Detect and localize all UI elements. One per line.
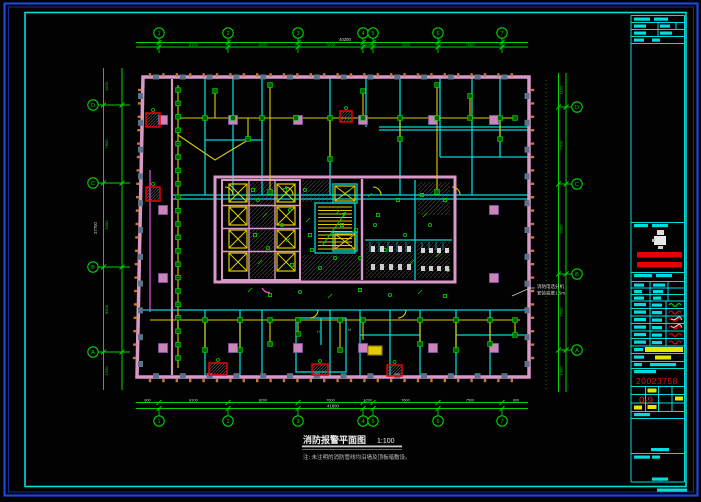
- column-tick: [531, 89, 534, 91]
- tb-text-bar: [652, 334, 662, 337]
- column-block: [207, 75, 213, 80]
- tb-text-bar: [653, 290, 663, 293]
- toilet-fixture: [389, 264, 393, 270]
- axis-bubble-label: 4: [361, 31, 364, 37]
- column-block: [421, 75, 427, 80]
- interior-columns: [159, 116, 499, 353]
- column-block: [341, 75, 347, 80]
- column-block: [525, 254, 530, 260]
- column-tick: [134, 276, 137, 278]
- column-tick: [470, 73, 472, 76]
- device-dot: [177, 170, 178, 171]
- toilet-fixture: [398, 246, 402, 252]
- tb-text-bar: [653, 297, 661, 300]
- column-tick: [310, 379, 312, 382]
- column-tick: [531, 317, 534, 319]
- column-tick: [457, 73, 459, 76]
- dim-text: 8200: [259, 42, 269, 47]
- device-dot: [499, 117, 500, 118]
- annotation-mark: [403, 233, 406, 236]
- dim-text: 7600: [326, 398, 334, 402]
- column-tick: [470, 379, 472, 382]
- column-block: [525, 173, 530, 179]
- device-dot: [297, 333, 298, 334]
- column-tick: [138, 116, 141, 118]
- interior-column: [490, 206, 499, 215]
- column-block: [138, 173, 143, 179]
- toilet-fixture: [421, 248, 425, 253]
- tb-text-bar: [652, 224, 668, 227]
- fire-hydrant-box: [387, 365, 402, 376]
- drawing-title: 消防报警平面图: [303, 434, 366, 445]
- tb-text-bar: [652, 478, 668, 481]
- tb-text-bar: [652, 39, 660, 42]
- tb-text-bar: [634, 18, 650, 21]
- toilet-fixture: [429, 266, 433, 271]
- axis-bubble-label: 3: [296, 31, 299, 37]
- axis-bubble-label: C: [91, 181, 95, 187]
- column-tick: [336, 379, 338, 382]
- device-dot: [489, 343, 490, 344]
- column-block: [525, 93, 530, 99]
- fire-hydrant-box: [146, 113, 160, 127]
- interior-column: [294, 344, 303, 353]
- device-dot: [297, 319, 298, 320]
- column-block: [525, 334, 530, 340]
- tb-text-bar: [660, 25, 670, 28]
- tb-text-bar: [634, 39, 644, 42]
- column-block: [138, 361, 143, 367]
- dim-text: 1500: [104, 366, 109, 376]
- device-dot: [261, 117, 262, 118]
- tb-text-bar: [652, 326, 662, 329]
- column-tick: [283, 379, 285, 382]
- axis-bubble-label: 6: [436, 31, 439, 37]
- column-tick: [202, 379, 204, 382]
- dim-text: 40200: [339, 37, 351, 42]
- column-tick: [229, 379, 231, 382]
- axis-bubble-label: 5: [371, 419, 374, 425]
- column-tick: [444, 379, 446, 382]
- dim-text: 41800: [327, 403, 339, 408]
- column-tick: [135, 250, 138, 252]
- axis-bubble-label: D: [575, 105, 579, 111]
- device-dot: [177, 304, 178, 305]
- device-dot: [514, 117, 515, 118]
- device-dot: [469, 117, 470, 118]
- elevator-x: [229, 207, 247, 225]
- column-tick: [403, 73, 405, 76]
- column-tick: [136, 196, 139, 198]
- column-block: [475, 75, 481, 80]
- elevator-x: [229, 253, 247, 271]
- tb-highlight-bar: [655, 356, 671, 360]
- tb-text-bar: [651, 448, 669, 451]
- column-tick: [531, 303, 534, 305]
- annotation-mark: [388, 293, 391, 296]
- toilet-fixture: [389, 246, 393, 252]
- toilet-fixture: [421, 266, 425, 271]
- partition-walls: [137, 77, 529, 377]
- dim-text: 1500: [104, 81, 109, 91]
- tb-text-bar: [634, 297, 644, 300]
- column-tick: [162, 73, 164, 76]
- column-tick: [457, 379, 459, 382]
- annotation-mark: [310, 248, 313, 251]
- annotation-mark: [308, 233, 311, 236]
- column-tick: [484, 379, 486, 382]
- device-dot: [269, 343, 270, 344]
- tb-text-bar: [660, 32, 672, 35]
- column-tick: [323, 73, 325, 76]
- annotation-mark: [248, 288, 252, 292]
- toilet-fixture: [407, 264, 411, 270]
- column-block: [233, 75, 239, 80]
- drawing-scale: 1:100: [377, 438, 395, 445]
- dim-text: 1400: [559, 366, 564, 376]
- column-block: [525, 120, 530, 126]
- device-dot: [419, 343, 420, 344]
- device-dot: [247, 138, 248, 139]
- column-tick: [430, 379, 432, 382]
- column-tick: [256, 379, 258, 382]
- column-block: [138, 307, 143, 313]
- device-dot: [177, 250, 178, 251]
- column-tick: [531, 116, 534, 118]
- column-tick: [531, 196, 534, 198]
- device-dot: [269, 84, 270, 85]
- column-tick: [531, 129, 534, 131]
- dim-text: 7600: [401, 42, 411, 47]
- column-tick: [149, 379, 151, 382]
- column-tick: [134, 317, 137, 319]
- column-tick: [310, 73, 312, 76]
- device-dot: [329, 117, 330, 118]
- device-dot: [489, 319, 490, 320]
- device-dot: [204, 349, 205, 350]
- dim-text: 27700: [93, 222, 98, 234]
- floor-plan-canvas[interactable]: 20023758 0-9 123456781008200760012007600…: [0, 0, 701, 502]
- column-tick: [531, 343, 534, 345]
- column-tick: [497, 379, 499, 382]
- column-block: [138, 200, 143, 206]
- column-tick: [137, 129, 140, 131]
- signature-scribble: [669, 304, 681, 307]
- device-dot: [177, 237, 178, 238]
- column-block: [421, 373, 427, 378]
- annotation-mark: [290, 263, 293, 266]
- axis-bubble-label: B: [91, 265, 95, 271]
- tb-text-bar: [634, 311, 646, 314]
- toilet-fixture: [380, 264, 384, 270]
- column-tick: [176, 73, 178, 76]
- device-dot: [177, 210, 178, 211]
- tb-text-bar: [652, 311, 662, 314]
- column-block: [448, 75, 454, 80]
- column-block: [138, 254, 143, 260]
- toilet-fixture: [407, 246, 411, 252]
- device-dot: [436, 191, 437, 192]
- column-tick: [531, 330, 534, 332]
- annotation-mark: [288, 208, 291, 211]
- column-block: [138, 120, 143, 126]
- annotation-mark: [348, 188, 352, 192]
- device-dot: [514, 319, 515, 320]
- tb-text-bar: [634, 274, 652, 277]
- axis-bubble-label: 7: [500, 419, 503, 425]
- device-dot: [362, 90, 363, 91]
- drawing-number: 0-9: [639, 395, 653, 406]
- column-block: [448, 373, 454, 378]
- tb-highlight-bar: [675, 397, 683, 401]
- column-tick: [133, 330, 136, 332]
- column-tick: [511, 379, 513, 382]
- device-dot: [269, 191, 270, 192]
- column-block: [260, 75, 266, 80]
- toilet-fixture: [398, 264, 402, 270]
- column-tick: [133, 343, 136, 345]
- signature-scribble: [669, 311, 681, 314]
- column-block: [367, 75, 373, 80]
- column-tick: [531, 276, 534, 278]
- axis-bubble-label: 1: [157, 419, 160, 425]
- device-dot: [239, 349, 240, 350]
- tb-text-bar: [634, 341, 646, 344]
- tb-text-bar: [634, 356, 644, 359]
- column-block: [341, 373, 347, 378]
- axis-bubble-label: 2: [226, 31, 229, 37]
- column-tick: [135, 223, 138, 225]
- toilet-fixture: [371, 264, 375, 270]
- column-block: [260, 373, 266, 378]
- dim-text: 7700: [559, 140, 564, 150]
- toilet-fixture: [429, 248, 433, 253]
- column-tick: [269, 379, 271, 382]
- column-tick: [136, 209, 139, 211]
- elevator-x: [277, 253, 295, 271]
- device-dot: [436, 117, 437, 118]
- device-dot: [204, 319, 205, 320]
- drawing-title-block: 消防报警平面图 1:100 注: 未注明的消防管线均沿墙及顶板暗敷设。: [302, 434, 411, 461]
- device-dot: [419, 319, 420, 320]
- column-tick: [444, 73, 446, 76]
- device-dot: [177, 197, 178, 198]
- column-tick: [133, 357, 136, 359]
- hydrant-marker: [319, 360, 322, 363]
- device-dot: [239, 319, 240, 320]
- column-tick: [202, 73, 204, 76]
- column-block: [525, 307, 530, 313]
- tb-text-bar: [652, 341, 662, 344]
- column-block: [180, 373, 186, 378]
- tb-text-bar: [650, 363, 676, 366]
- device-dot: [399, 117, 400, 118]
- annotation-mark: [443, 294, 446, 297]
- hydrant-marker: [152, 109, 155, 112]
- interior-column: [490, 116, 499, 125]
- column-block: [138, 147, 143, 153]
- dim-text: 800: [144, 398, 150, 402]
- column-tick: [243, 379, 245, 382]
- tb-text-bar: [634, 284, 644, 287]
- column-tick: [336, 73, 338, 76]
- device-dot: [177, 223, 178, 224]
- column-block: [180, 75, 186, 80]
- column-block: [367, 373, 373, 378]
- column-tick: [162, 379, 164, 382]
- column-block: [138, 227, 143, 233]
- column-tick: [531, 290, 534, 292]
- column-block: [153, 75, 159, 80]
- column-tick: [243, 73, 245, 76]
- tb-text-bar: [634, 326, 646, 329]
- axis-bubble-label: C: [575, 182, 579, 188]
- device-dot: [177, 130, 178, 131]
- column-block: [138, 334, 143, 340]
- device-dot: [469, 95, 470, 96]
- elevator-x: [277, 230, 295, 248]
- axis-bubble-label: A: [91, 350, 95, 356]
- fire-hydrant-box: [209, 363, 227, 375]
- cad-viewport[interactable]: 20023758 0-9 123456781008200760012007600…: [0, 0, 701, 502]
- column-block: [525, 281, 530, 287]
- hydrant-marker: [393, 361, 396, 364]
- dim-text: 7600: [559, 307, 564, 317]
- column-tick: [497, 73, 499, 76]
- text-annotation: 消防电话分机 安装高度1.5m: [512, 283, 565, 297]
- annotation-mark: [376, 213, 379, 216]
- device-dot: [204, 117, 205, 118]
- dim-text: 8200: [259, 398, 267, 402]
- tb-text-bar: [654, 18, 668, 21]
- annotation-mark: [268, 293, 271, 296]
- elevator-x: [277, 207, 295, 225]
- fire-hydrant-box: [312, 364, 328, 375]
- axis-bubble-label: B: [575, 272, 579, 278]
- column-tick: [296, 73, 298, 76]
- interior-column: [159, 206, 168, 215]
- axis-bubble-label: D: [91, 103, 95, 109]
- column-tick: [417, 379, 419, 382]
- column-tick: [531, 169, 534, 171]
- device-dot: [436, 84, 437, 85]
- dim-text: 9000: [559, 224, 564, 234]
- axis-bubble-label: 1: [157, 31, 160, 37]
- hydrant-marker: [217, 359, 220, 362]
- column-tick: [149, 73, 151, 76]
- dim-text: 7500: [466, 42, 476, 47]
- column-tick: [189, 73, 191, 76]
- column-tick: [137, 142, 140, 144]
- column-tick: [135, 263, 138, 265]
- dim-text: 8500: [104, 304, 109, 314]
- annotation-mark: [428, 223, 431, 226]
- dim-text: 7600: [401, 398, 409, 402]
- axis-bubble-label: A: [575, 348, 579, 354]
- company-name-bars: [637, 252, 682, 268]
- device-dot: [455, 319, 456, 320]
- column-tick: [363, 73, 365, 76]
- column-tick: [417, 73, 419, 76]
- device-dot: [499, 138, 500, 139]
- column-tick: [136, 183, 139, 185]
- column-tick: [296, 379, 298, 382]
- column-tick: [283, 73, 285, 76]
- fire-hydrant-box: [340, 111, 352, 122]
- column-block: [138, 93, 143, 99]
- column-tick: [229, 73, 231, 76]
- dim-text: 7800: [104, 139, 109, 149]
- column-tick: [350, 379, 352, 382]
- tb-text-bar: [634, 290, 642, 293]
- device-dot: [177, 290, 178, 291]
- tb-text-bar: [634, 456, 650, 459]
- signature-scribble: [669, 341, 681, 344]
- column-tick: [216, 73, 218, 76]
- interior-column: [159, 344, 168, 353]
- column-block: [475, 373, 481, 378]
- tb-text-bar: [634, 413, 650, 416]
- dim-text: 1200: [364, 42, 374, 47]
- column-tick: [377, 73, 379, 76]
- device-dot: [177, 89, 178, 90]
- column-tick: [269, 73, 271, 76]
- column-tick: [216, 379, 218, 382]
- tb-text-bar: [652, 319, 662, 322]
- column-tick: [531, 183, 534, 185]
- column-block: [138, 281, 143, 287]
- column-tick: [189, 379, 191, 382]
- tb-text-bar: [652, 304, 662, 307]
- column-tick: [137, 169, 140, 171]
- column-tick: [531, 223, 534, 225]
- device-dot: [339, 319, 340, 320]
- tb-text-bar: [634, 333, 646, 336]
- device-dot: [177, 183, 178, 184]
- dim-text: 8100: [189, 42, 199, 47]
- toilet-fixture: [437, 266, 441, 271]
- device-dot: [177, 277, 178, 278]
- interior-column: [159, 274, 168, 283]
- column-tick: [323, 379, 325, 382]
- tb-text-bar: [656, 274, 672, 277]
- device-dot: [214, 90, 215, 91]
- interior-column: [490, 274, 499, 283]
- dim-text: 8100: [189, 398, 197, 402]
- column-tick: [350, 73, 352, 76]
- axis-bubble-label: 5: [371, 31, 374, 37]
- axis-bubble-label: 7: [500, 31, 503, 37]
- tb-text-bar: [634, 32, 646, 35]
- toilet-fixture: [380, 246, 384, 252]
- dim-text: 7500: [466, 398, 474, 402]
- column-block: [501, 75, 507, 80]
- column-tick: [390, 73, 392, 76]
- column-block: [525, 227, 530, 233]
- drawing-note: 注: 未注明的消防管线均沿墙及顶板暗敷设。: [303, 453, 411, 461]
- device-dot: [177, 143, 178, 144]
- annotation-line2: 安装高度1.5m: [537, 290, 565, 297]
- device-dot: [362, 117, 363, 118]
- column-tick: [531, 156, 534, 158]
- dim-text: 800: [513, 398, 519, 402]
- annotation-mark: [306, 218, 310, 222]
- room-label: M: [348, 327, 351, 332]
- device-dot: [177, 331, 178, 332]
- title-block: 20023758 0-9: [631, 16, 687, 492]
- column-tick: [531, 357, 534, 359]
- annotation-line1: 消防电话分机: [537, 283, 564, 290]
